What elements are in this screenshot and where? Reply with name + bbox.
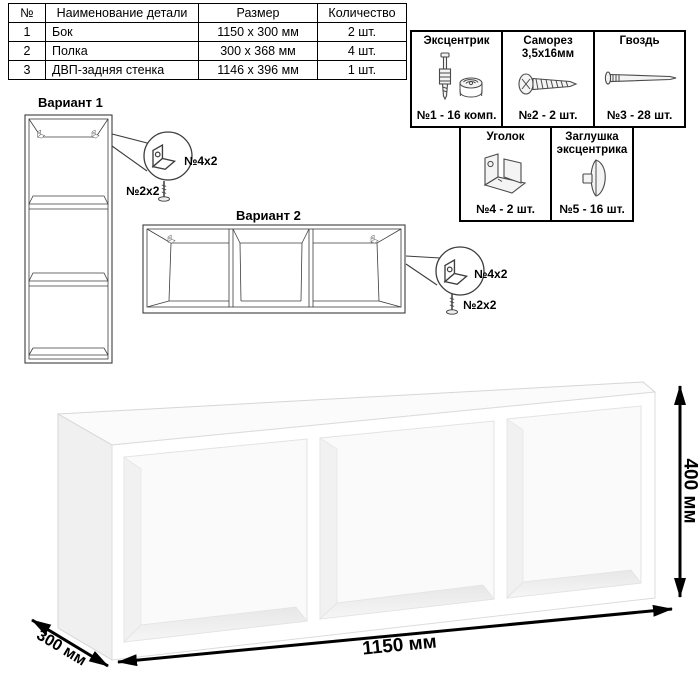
cell-qty: 1 шт. — [318, 61, 407, 80]
hardware-item-name: Саморез 3,5х16мм — [505, 35, 591, 61]
cell-name: Полка — [46, 42, 199, 61]
screw-count-label: №2х2 — [463, 298, 497, 312]
variant-drawings: Вариант 1 №4х2 №2х2 Вариант 2 — [0, 88, 560, 378]
cell-num: 3 — [9, 61, 46, 80]
header-qty: Количество — [318, 4, 407, 23]
cell-name: Бок — [46, 23, 199, 42]
height-dimension-label: 400 мм — [680, 458, 700, 523]
screw-icon — [447, 294, 458, 314]
cell-size: 300 x 368 мм — [199, 42, 318, 61]
dimension-height: 400 мм — [680, 386, 700, 597]
hardware-item-name: Заглушка эксцентрика — [554, 131, 630, 157]
eccentric-cap-icon — [570, 157, 614, 202]
hardware-item-name: Гвоздь — [619, 35, 659, 48]
variant2-drawing: Вариант 2 — [143, 208, 405, 313]
variant1-callout: №4х2 №2х2 — [112, 132, 218, 201]
variant1-label: Вариант 1 — [38, 95, 103, 110]
shelf — [29, 196, 108, 204]
variant1-drawing: Вариант 1 — [25, 95, 112, 363]
shelf-3d-render: 400 мм 1150 мм 300 мм — [0, 370, 700, 690]
table-row: 1 Бок 1150 x 300 мм 2 шт. — [9, 23, 407, 42]
compartment — [507, 406, 641, 598]
bracket-count-label: №4х2 — [474, 267, 508, 281]
header-size: Размер — [199, 4, 318, 23]
cell-name: ДВП-задняя стенка — [46, 61, 199, 80]
cell-num: 2 — [9, 42, 46, 61]
table-row: 2 Полка 300 x 368 мм 4 шт. — [9, 42, 407, 61]
compartment — [124, 439, 307, 642]
cell-size: 1150 x 300 мм — [199, 23, 318, 42]
nail-icon — [600, 48, 680, 108]
corner-bracket-icon — [371, 235, 378, 243]
screw-icon — [159, 181, 170, 201]
cell-qty: 2 шт. — [318, 23, 407, 42]
cell-size: 1146 x 396 мм — [199, 61, 318, 80]
hardware-item-name: Эксцентрик — [423, 35, 489, 48]
hardware-item-nail: Гвоздь №3 - 28 шт. — [593, 30, 686, 128]
compartment — [320, 421, 494, 619]
variant2-cabinet-outline — [143, 225, 405, 313]
assembly-instruction-sheet: { "parts_table": { "headers": ["№", "Наи… — [0, 0, 700, 690]
shelf — [29, 273, 108, 281]
variant1-cabinet-outline — [25, 115, 112, 363]
variant2-label: Вариант 2 — [236, 208, 301, 223]
cell-qty: 4 шт. — [318, 42, 407, 61]
parts-table: № Наименование детали Размер Количество … — [8, 3, 407, 80]
header-num: № — [9, 4, 46, 23]
cell-num: 1 — [9, 23, 46, 42]
corner-bracket-icon — [168, 235, 175, 243]
screw-count-label: №2х2 — [126, 184, 160, 198]
hardware-item-qty: №3 - 28 шт. — [607, 108, 673, 122]
bracket-count-label: №4х2 — [184, 154, 218, 168]
hardware-item-cap: Заглушка эксцентрика №5 - 16 шт. — [550, 126, 634, 222]
table-row: 3 ДВП-задняя стенка 1146 x 396 мм 1 шт. — [9, 61, 407, 80]
parts-table-header-row: № Наименование детали Размер Количество — [9, 4, 407, 23]
hardware-item-qty: №5 - 16 шт. — [559, 202, 625, 216]
width-dimension-label: 1150 мм — [361, 631, 437, 659]
variant2-callout: №4х2 №2х2 — [406, 247, 508, 314]
header-name: Наименование детали — [46, 4, 199, 23]
